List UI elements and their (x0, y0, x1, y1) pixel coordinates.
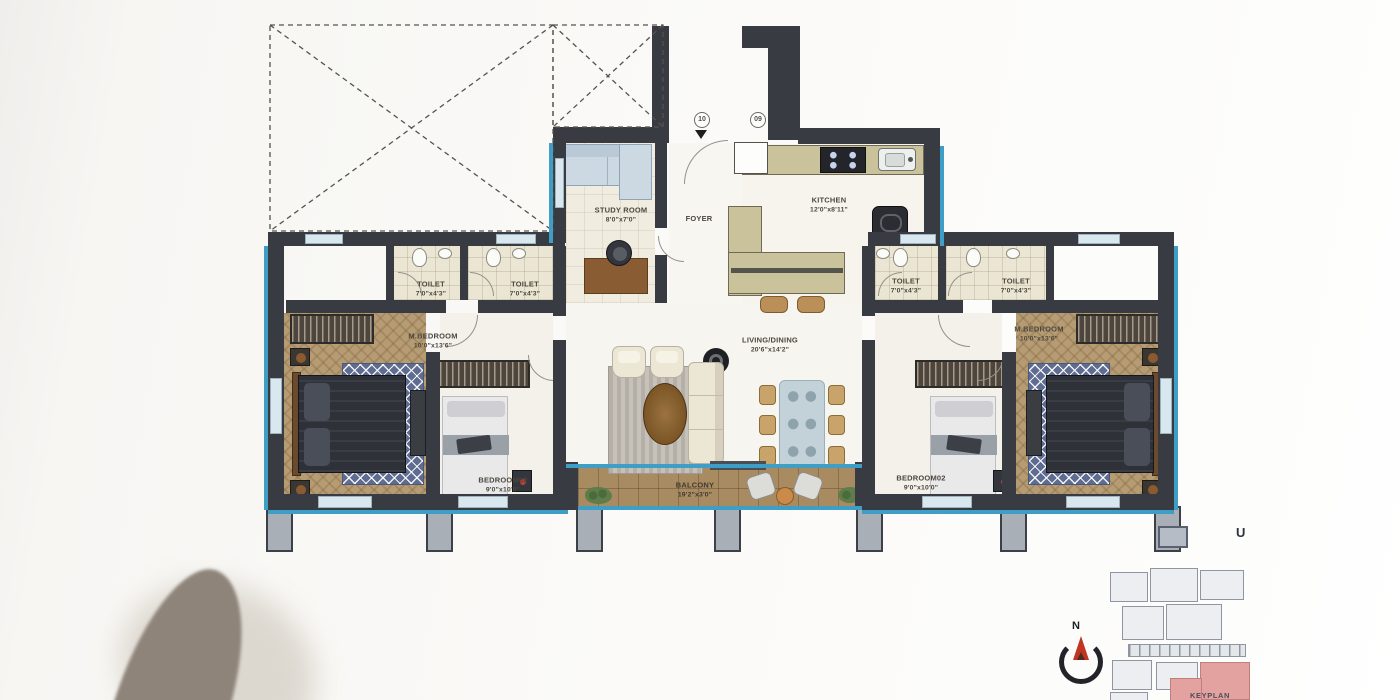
washbasin-icon (438, 248, 452, 259)
wall (862, 494, 1174, 510)
window (318, 496, 372, 508)
dining-chair (759, 385, 776, 405)
wardrobe (1076, 314, 1160, 344)
wall (992, 300, 1160, 313)
armchair (650, 346, 684, 378)
wall (386, 242, 394, 300)
room-label-foyer: FOYER (686, 214, 713, 224)
room-size: 7'0"x4'3" (510, 289, 540, 298)
wall (798, 128, 940, 144)
room-name: TOILET (892, 276, 920, 285)
accent-line (578, 506, 862, 510)
wall (460, 242, 468, 300)
room-label-toilet3: TOILET7'0"x4'3" (891, 276, 921, 295)
wall (655, 255, 667, 303)
compass-needle-base-icon (1077, 652, 1085, 660)
room-size: 10'0"x13'6" (1014, 334, 1063, 343)
keyplan-block (1200, 570, 1244, 600)
wall-duct (742, 26, 800, 48)
unit-number-badge: 10 (694, 112, 710, 128)
wall (566, 462, 578, 510)
accent-line (940, 146, 944, 246)
dresser (1026, 390, 1042, 456)
armchair (612, 346, 646, 378)
coffee-table (643, 383, 687, 445)
room-size: 10'0"x13'6" (408, 341, 457, 350)
room-name: BEDROOM02 (896, 473, 945, 482)
keyplan-corner-text: U (1236, 526, 1245, 540)
accent-line (268, 510, 568, 514)
room-name: STUDY ROOM (595, 205, 648, 214)
window (458, 496, 508, 508)
dining-chair (759, 415, 776, 435)
sofa (688, 362, 724, 464)
room-size: 19'2"x3'0" (676, 490, 714, 499)
wc-icon (966, 248, 981, 267)
dashed-void-boxes (265, 20, 667, 236)
room-name: LIVING/DINING (742, 335, 798, 344)
wall (1158, 246, 1174, 508)
wc-icon (486, 248, 501, 267)
window (555, 158, 564, 208)
wall-duct (768, 48, 800, 140)
floor-plan: 10 09 STUDY ROOM8'0"x7'0" FOYER KITCHEN1… (0, 0, 1400, 700)
dresser (410, 390, 426, 456)
window (305, 234, 343, 244)
double-bed (298, 375, 406, 473)
plant-icon (585, 487, 612, 504)
double-bed (1046, 375, 1154, 473)
washbasin-icon (1006, 248, 1020, 259)
unit-number: 09 (754, 116, 762, 123)
keyplan-core-block (1158, 526, 1188, 548)
accent-line (549, 143, 553, 243)
window (270, 378, 282, 434)
room-label-kitchen: KITCHEN12'0"x8'11" (810, 195, 848, 214)
wall (1002, 352, 1016, 504)
room-size: 20'6"x14'2" (742, 345, 798, 354)
room-label-mbedroom-left: M.BEDROOM10'0"x13'6" (408, 331, 457, 350)
room-label-toilet2: TOILET7'0"x4'3" (510, 279, 540, 298)
room-name: TOILET (417, 279, 445, 288)
room-label-toilet1: TOILET7'0"x4'3" (416, 279, 446, 298)
room-size: 8'0"x7'0" (595, 215, 648, 224)
window (900, 234, 936, 244)
island-strip (731, 268, 843, 273)
office-chair (606, 240, 632, 266)
wall (286, 300, 446, 313)
wall (1046, 242, 1054, 300)
window (1078, 234, 1120, 244)
room-name: KITCHEN (812, 195, 847, 204)
column (576, 506, 603, 552)
keyplan-label: KEYPLAN (1190, 691, 1230, 700)
room-label-balcony: BALCONY19'2"x3'0" (676, 480, 714, 499)
dining-chair (828, 446, 845, 466)
accent-line (264, 246, 268, 510)
wall (855, 462, 867, 510)
wc-icon (893, 248, 908, 267)
keyplan-block (1166, 604, 1222, 640)
wall (426, 352, 440, 504)
column (714, 506, 741, 552)
unit-number: 10 (698, 116, 706, 123)
wall (478, 300, 556, 313)
room-name: M.BEDROOM (408, 331, 457, 340)
wall (268, 246, 284, 508)
room-label-toilet4: TOILET7'0"x4'3" (1001, 276, 1031, 295)
room-name: TOILET (1002, 276, 1030, 285)
wall (938, 242, 946, 300)
wardrobe (290, 314, 374, 344)
washbasin-icon (512, 248, 526, 259)
keyplan-block (1150, 568, 1198, 602)
keyplan-block (1122, 606, 1164, 640)
room-size: 9'0"x10'0" (896, 483, 945, 492)
room-label-mbedroom-right: M.BEDROOM10'0"x13'6" (1014, 324, 1063, 343)
keyplan-block (1110, 692, 1148, 700)
wall (862, 246, 875, 316)
compass-north-label: N (1072, 620, 1080, 632)
room-size: 7'0"x4'3" (416, 289, 446, 298)
wardrobe (438, 360, 530, 388)
wall (875, 300, 963, 313)
window (1160, 378, 1172, 434)
stove-icon (820, 147, 866, 173)
room-label-study: STUDY ROOM8'0"x7'0" (595, 205, 648, 224)
wall (268, 494, 568, 510)
room-size: 7'0"x4'3" (1001, 286, 1031, 295)
window (1066, 496, 1120, 508)
keyplan (1098, 546, 1250, 700)
washbasin-icon (876, 248, 890, 259)
sink-icon (878, 148, 916, 171)
keyplan-corridor (1128, 644, 1246, 657)
accent-line (862, 510, 1174, 514)
room-name: BALCONY (676, 480, 714, 489)
nightstand (290, 348, 310, 366)
dining-chair (828, 415, 845, 435)
keyplan-block (1112, 660, 1152, 690)
shoe-cabinet (734, 142, 768, 174)
room-label-living: LIVING/DINING20'6"x14'2" (742, 335, 798, 354)
bar-stool (760, 296, 788, 313)
room-name: BEDROOM02 (478, 475, 527, 484)
room-size: 12'0"x8'11" (810, 205, 848, 214)
keyplan-block (1110, 572, 1148, 602)
accent-line (566, 464, 862, 468)
bar-stool (797, 296, 825, 313)
window (922, 496, 972, 508)
room-name: M.BEDROOM (1014, 324, 1063, 333)
wall (924, 144, 940, 246)
room-label-bedroom02-left: BEDROOM029'0"x10'0" (478, 475, 527, 494)
room-size: 7'0"x4'3" (891, 286, 921, 295)
wall (553, 340, 566, 508)
unit-number-badge: 09 (750, 112, 766, 128)
balcony-table (776, 487, 794, 505)
wc-icon (412, 248, 427, 267)
room-name: TOILET (511, 279, 539, 288)
room-label-bedroom02-right: BEDROOM029'0"x10'0" (896, 473, 945, 492)
kitchen-island (728, 252, 845, 294)
room-size: 9'0"x10'0" (478, 485, 527, 494)
accent-line (1174, 246, 1178, 510)
window (496, 234, 536, 244)
dining-chair (828, 385, 845, 405)
dining-table (779, 380, 825, 468)
entrance-marker-icon (695, 130, 707, 139)
room-name: FOYER (686, 214, 713, 223)
